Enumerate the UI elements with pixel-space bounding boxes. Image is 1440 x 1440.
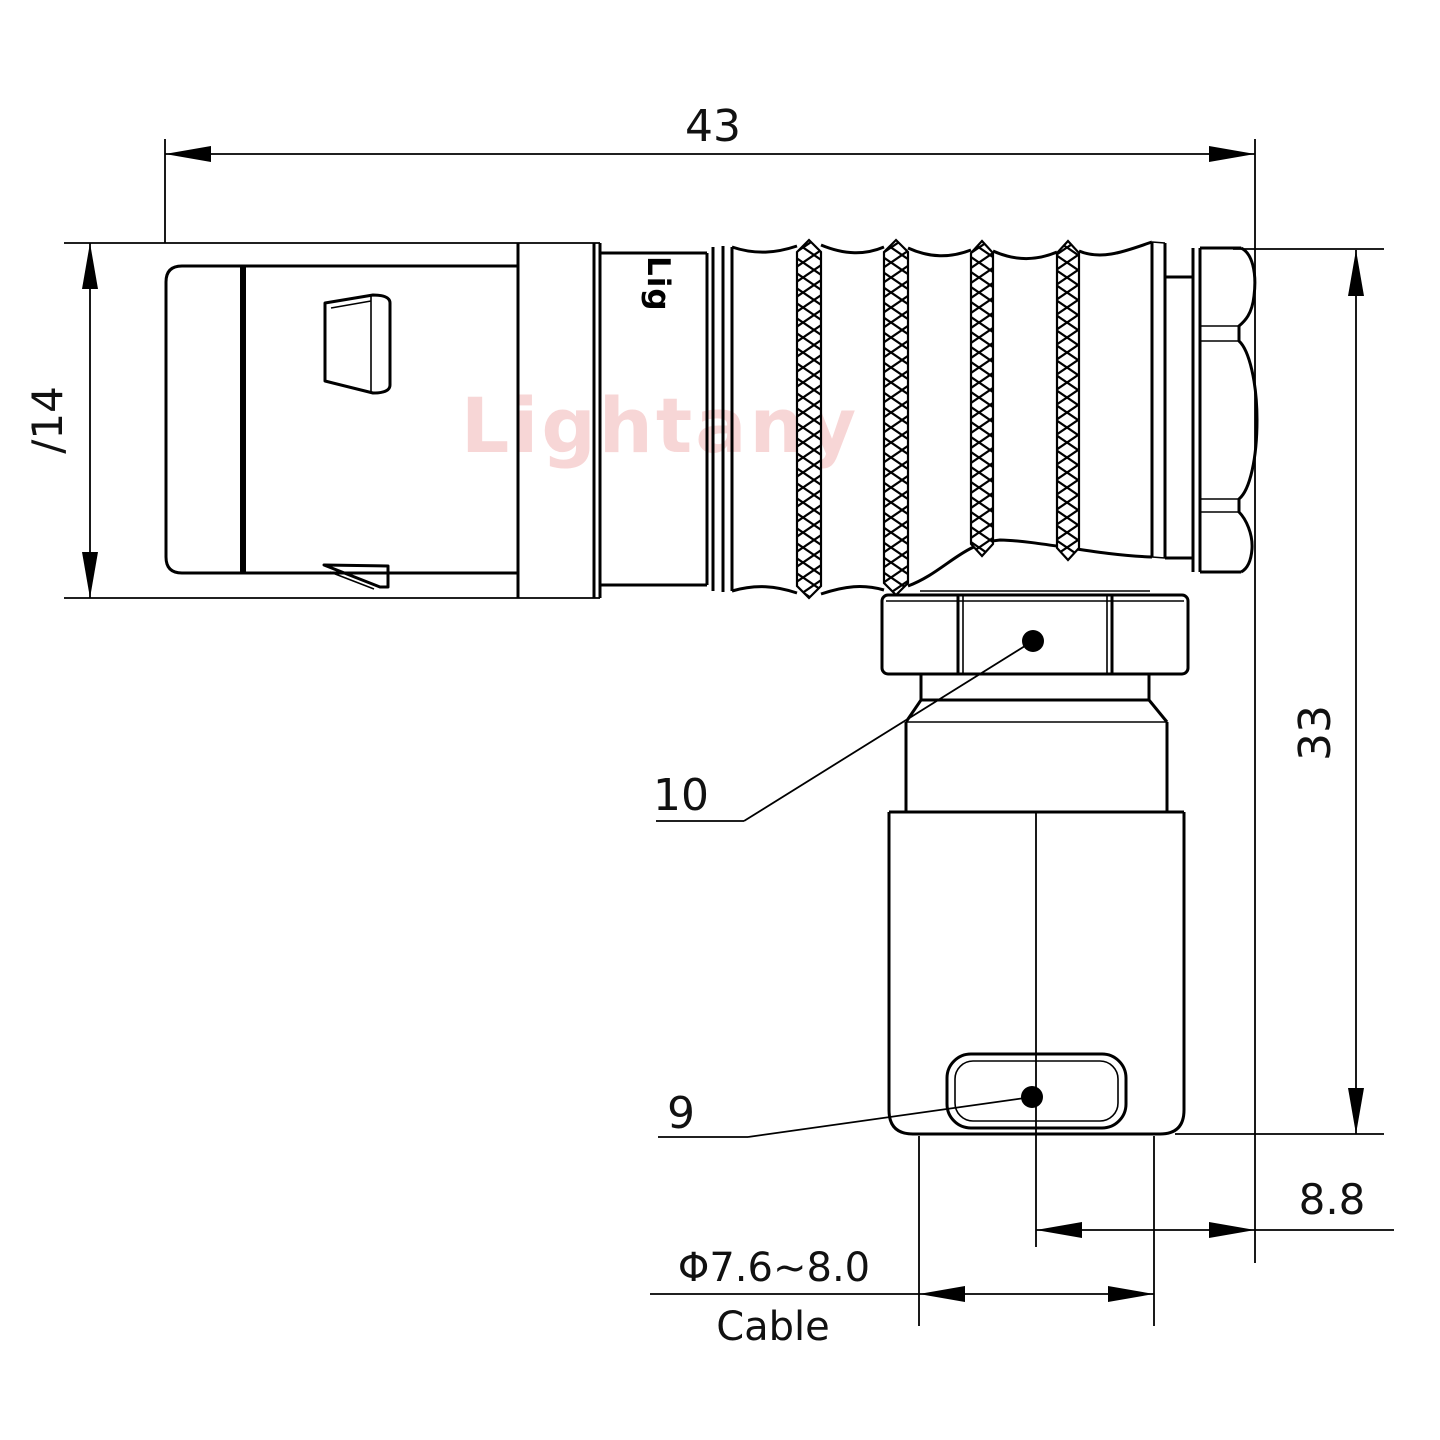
knurl-band-2 [884,240,908,595]
back-shell [1193,248,1257,572]
dimension-overall-height: 33 [1175,249,1384,1134]
arrowhead-down [1348,1088,1364,1134]
dim-text-rear-offset: 8.8 [1299,1175,1366,1224]
leader-line [744,641,1033,821]
arrowhead-up [82,243,98,289]
drawing-sheet: Lightany [0,0,1440,1440]
label-text-9: 9 [667,1088,695,1139]
leader-dot [1021,1086,1043,1108]
label-text-10: 10 [653,770,709,821]
brand-mark-text: Lig [640,256,676,312]
dim-text-cable-label: Cable [716,1304,830,1350]
part-label-coupling-nut: 10 [653,630,1044,821]
arrowhead-down [82,552,98,598]
arrowhead-left [919,1286,965,1302]
knurl-band-1 [797,240,821,598]
arrowhead-left [165,146,211,162]
knurl-band-4 [1057,241,1079,560]
rear-neck [1165,277,1193,558]
dimension-overall-length: 43 [165,101,1255,1263]
knurl-band-3 [971,241,993,556]
leader-dot [1022,630,1044,652]
bottom-notch [324,565,388,589]
arrowhead-left [1036,1222,1082,1238]
arrowhead-right [1209,1222,1255,1238]
dim-text-overall-height: 33 [1290,705,1341,761]
dim-text-front-diameter: ∕14 [23,386,72,454]
arrowhead-right [1209,146,1255,162]
arrowhead-up [1348,250,1364,296]
dim-text-cable-range: Φ7.6~8.0 [678,1245,870,1291]
connector-technical-drawing: Lightany [0,0,1440,1440]
arrowhead-right [1108,1286,1154,1302]
connector-body: Lig [166,240,1257,1134]
dim-text-overall-length: 43 [685,101,741,152]
mating-key [325,295,390,393]
part-label-cable-clamp: 9 [658,1086,1043,1139]
dimension-rear-offset: 8.8 [1036,812,1394,1247]
dimension-cable-range: Φ7.6~8.0 Cable [650,1136,1154,1350]
